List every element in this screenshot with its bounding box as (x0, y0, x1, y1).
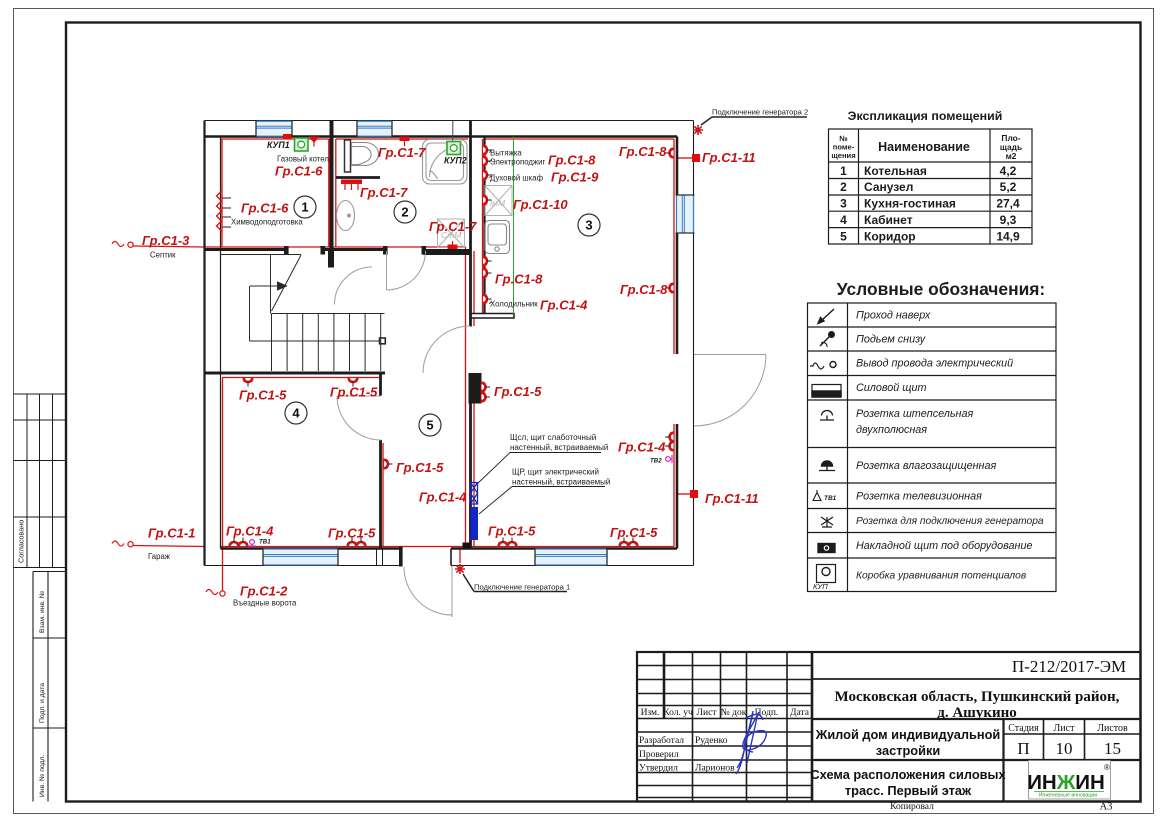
svg-text:Гр.С1-6: Гр.С1-6 (241, 201, 289, 216)
svg-text:Листов: Листов (1097, 723, 1128, 734)
svg-text:ТВ2: ТВ2 (650, 458, 662, 465)
svg-text:Силовой щит: Силовой щит (856, 382, 927, 394)
svg-text:Разработал: Разработал (639, 735, 684, 746)
svg-text:Инженерные инновации: Инженерные инновации (1039, 793, 1097, 799)
svg-text:Гр.С1-10: Гр.С1-10 (513, 197, 568, 212)
svg-text:Химводоподготовка: Химводоподготовка (231, 218, 303, 227)
svg-text:Гр.С1-2: Гр.С1-2 (240, 584, 288, 599)
svg-text:Гр.С1-5: Гр.С1-5 (494, 384, 542, 399)
svg-text:Вывод провода электрический: Вывод провода электрический (856, 358, 1013, 370)
svg-text:Гр.С1-4: Гр.С1-4 (419, 490, 467, 505)
svg-text:4,2: 4,2 (1000, 164, 1017, 178)
svg-text:Гр.С1-9: Гр.С1-9 (551, 170, 599, 185)
svg-text:Согласовано: Согласовано (17, 520, 26, 563)
svg-text:9,3: 9,3 (1000, 213, 1017, 227)
svg-text:Щсл, щит слаботочный: Щсл, щит слаботочный (510, 433, 596, 442)
svg-text:2: 2 (401, 205, 408, 220)
svg-text:Гр.С1-5: Гр.С1-5 (330, 385, 378, 400)
svg-text:ЩР, щит электрический: ЩР, щит электрический (512, 468, 599, 477)
svg-text:А3: А3 (1100, 802, 1113, 813)
svg-text:4: 4 (292, 406, 300, 421)
svg-text:Кол. уч: Кол. уч (663, 708, 693, 718)
svg-text:Гр.С1-7: Гр.С1-7 (378, 145, 426, 160)
svg-text:Подключение генератора 1: Подключение генератора 1 (474, 583, 570, 592)
svg-text:5,2: 5,2 (1000, 180, 1017, 194)
svg-text:Лист: Лист (1054, 723, 1076, 734)
svg-text:Подключение генератора 2: Подключение генератора 2 (712, 108, 808, 117)
svg-text:ТВ1: ТВ1 (824, 495, 837, 502)
svg-text:3: 3 (840, 197, 847, 211)
svg-text:Розетка штепсельная: Розетка штепсельная (856, 408, 974, 420)
svg-text:Утвердил: Утвердил (639, 764, 678, 774)
svg-text:1: 1 (301, 200, 308, 215)
svg-text:10: 10 (1056, 739, 1073, 758)
svg-text:Проход наверх: Проход наверх (856, 310, 931, 322)
svg-text:Котельная: Котельная (864, 164, 927, 178)
svg-text:Гр.С1-7: Гр.С1-7 (360, 185, 408, 200)
svg-text:Гр.С1-8: Гр.С1-8 (548, 153, 596, 168)
svg-text:П: П (1017, 739, 1029, 758)
svg-text:1: 1 (840, 164, 847, 178)
svg-text:Схема расположения силовых: Схема расположения силовых (810, 767, 1006, 782)
svg-text:14,9: 14,9 (996, 229, 1020, 243)
svg-text:трасс. Первый этаж: трасс. Первый этаж (845, 783, 972, 798)
svg-text:КУП1: КУП1 (267, 140, 290, 150)
svg-text:Условные обозначения:: Условные обозначения: (837, 279, 1045, 299)
svg-text:Накладной щит под оборудование: Накладной щит под оборудование (856, 540, 1032, 552)
svg-text:Кухня-гостиная: Кухня-гостиная (864, 197, 956, 211)
svg-text:ИНЖИН: ИНЖИН (1027, 771, 1105, 794)
svg-text:Копировал: Копировал (890, 802, 934, 812)
svg-text:П-212/2017-ЭМ: П-212/2017-ЭМ (1012, 657, 1126, 676)
svg-text:4: 4 (840, 213, 847, 227)
svg-text:Инв. № подл.: Инв. № подл. (39, 755, 46, 797)
svg-text:д. Ашукино: д. Ашукино (937, 705, 1017, 721)
svg-text:Гр.С1-8: Гр.С1-8 (620, 282, 668, 297)
svg-text:27,4: 27,4 (996, 197, 1020, 211)
svg-text:Гр.С1-11: Гр.С1-11 (702, 150, 756, 165)
svg-text:Подп. и дата: Подп. и дата (39, 683, 46, 723)
svg-text:Гр.С1-4: Гр.С1-4 (540, 298, 588, 313)
svg-text:Кабинет: Кабинет (864, 213, 913, 227)
svg-text:Взам. инв. №: Взам. инв. № (39, 591, 46, 633)
svg-text:Московская область, Пушкинский: Московская область, Пушкинский район, (835, 689, 1120, 705)
svg-text:№ док: № док (721, 708, 747, 718)
svg-text:Санузел: Санузел (864, 180, 913, 194)
svg-text:Гр.С1-4: Гр.С1-4 (226, 524, 274, 539)
svg-text:Газовый котел: Газовый котел (277, 155, 329, 164)
svg-text:Лист: Лист (697, 708, 718, 718)
svg-text:Гр.С1-6: Гр.С1-6 (275, 164, 323, 179)
svg-text:Въездные ворота: Въездные ворота (233, 599, 297, 608)
svg-text:Гр.С1-8: Гр.С1-8 (619, 144, 667, 159)
svg-text:застройки: застройки (876, 743, 940, 758)
svg-text:ТВ1: ТВ1 (259, 539, 271, 546)
svg-text:двухполюсная: двухполюсная (856, 424, 927, 436)
svg-text:Коридор: Коридор (864, 229, 916, 243)
svg-text:Гр.С1-5: Гр.С1-5 (488, 524, 536, 539)
svg-text:Септик: Септик (150, 251, 176, 260)
svg-text:Наименование: Наименование (878, 140, 970, 154)
svg-text:Холодильник: Холодильник (490, 300, 538, 309)
svg-text:Дата: Дата (790, 708, 810, 718)
svg-text:Ларионов: Ларионов (695, 764, 735, 774)
svg-text:Коробка уравнивания потенциало: Коробка уравнивания потенциалов (856, 570, 1027, 582)
svg-text:Гр.С1-7: Гр.С1-7 (429, 219, 477, 234)
svg-text:Гр.С1-5: Гр.С1-5 (239, 388, 287, 403)
svg-text:®: ® (1104, 763, 1110, 772)
svg-text:Розетка телевизионная: Розетка телевизионная (856, 491, 982, 503)
svg-text:м2: м2 (1006, 151, 1017, 161)
svg-text:Гр.С1-5: Гр.С1-5 (610, 525, 658, 540)
svg-text:КУП2: КУП2 (444, 156, 467, 166)
svg-text:Розетка для подключения генера: Розетка для подключения генератора (856, 516, 1044, 527)
svg-text:2: 2 (840, 180, 847, 194)
svg-text:Вытяжка: Вытяжка (490, 149, 522, 158)
svg-text:Духовой шкаф: Духовой шкаф (490, 174, 544, 183)
svg-text:Гр.С1-4: Гр.С1-4 (618, 440, 666, 455)
svg-text:щения: щения (831, 151, 855, 160)
svg-text:Экспликация помещений: Экспликация помещений (848, 109, 1003, 123)
svg-text:Руденко: Руденко (695, 736, 728, 746)
svg-text:15: 15 (1104, 739, 1121, 758)
svg-text:Гр.С1-11: Гр.С1-11 (705, 491, 759, 506)
svg-text:настенный, встраиваемый: настенный, встраиваемый (512, 478, 610, 487)
svg-text:3: 3 (585, 218, 592, 233)
svg-text:Гр.С1-3: Гр.С1-3 (142, 233, 190, 248)
svg-text:Электроподжиг: Электроподжиг (490, 158, 545, 167)
svg-text:Гр.С1-5: Гр.С1-5 (328, 526, 376, 541)
svg-text:КУП: КУП (813, 582, 828, 591)
svg-text:Гараж: Гараж (148, 552, 171, 561)
svg-text:Проверил: Проверил (639, 750, 679, 760)
svg-text:Розетка влагозащищенная: Розетка влагозащищенная (856, 460, 996, 472)
svg-text:Гр.С1-1: Гр.С1-1 (148, 526, 195, 541)
svg-text:Подьем снизу: Подьем снизу (856, 334, 926, 346)
svg-text:5: 5 (840, 229, 847, 243)
svg-text:Гр.С1-5: Гр.С1-5 (396, 460, 444, 475)
svg-text:5: 5 (426, 418, 433, 433)
svg-text:Жилой дом индивидуальной: Жилой дом индивидуальной (815, 727, 1001, 742)
svg-text:Гр.С1-8: Гр.С1-8 (495, 272, 543, 287)
svg-text:Изм.: Изм. (641, 708, 660, 718)
svg-text:настенный, встраиваемый: настенный, встраиваемый (510, 443, 608, 452)
svg-text:Стадия: Стадия (1008, 723, 1039, 734)
